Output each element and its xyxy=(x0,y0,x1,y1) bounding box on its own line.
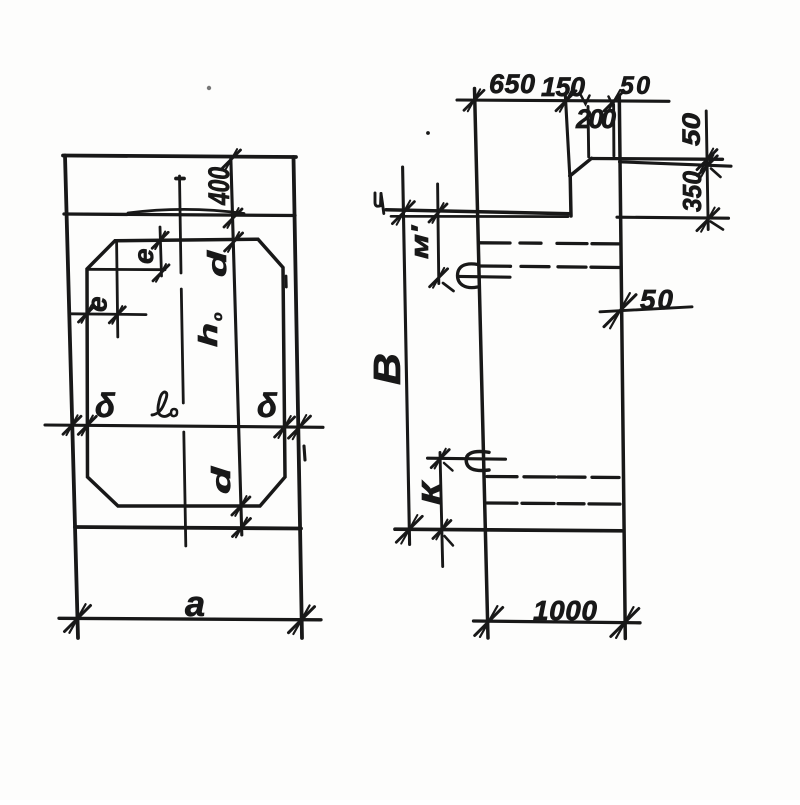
svg-text:350: 350 xyxy=(677,170,707,212)
svg-text:200: 200 xyxy=(575,104,616,134)
svg-text:d: d xyxy=(202,249,232,277)
svg-text:d: d xyxy=(206,465,236,494)
svg-text:150: 150 xyxy=(541,72,585,102)
svg-text:В: В xyxy=(367,353,409,385)
svg-text:a: a xyxy=(185,583,205,624)
svg-text:e: e xyxy=(82,296,113,312)
svg-text:1000: 1000 xyxy=(533,595,597,626)
svg-text:к: к xyxy=(410,480,448,505)
svg-text:50: 50 xyxy=(640,284,673,315)
svg-text:δ: δ xyxy=(257,387,278,424)
svg-text:δ: δ xyxy=(95,387,116,424)
svg-text:o: o xyxy=(209,312,225,321)
svg-text:650: 650 xyxy=(489,69,535,99)
svg-text:м': м' xyxy=(407,224,434,259)
svg-text:50: 50 xyxy=(678,113,706,146)
svg-text:h: h xyxy=(193,323,223,347)
svg-text:e: e xyxy=(128,248,159,264)
svg-text:400: 400 xyxy=(203,167,236,206)
